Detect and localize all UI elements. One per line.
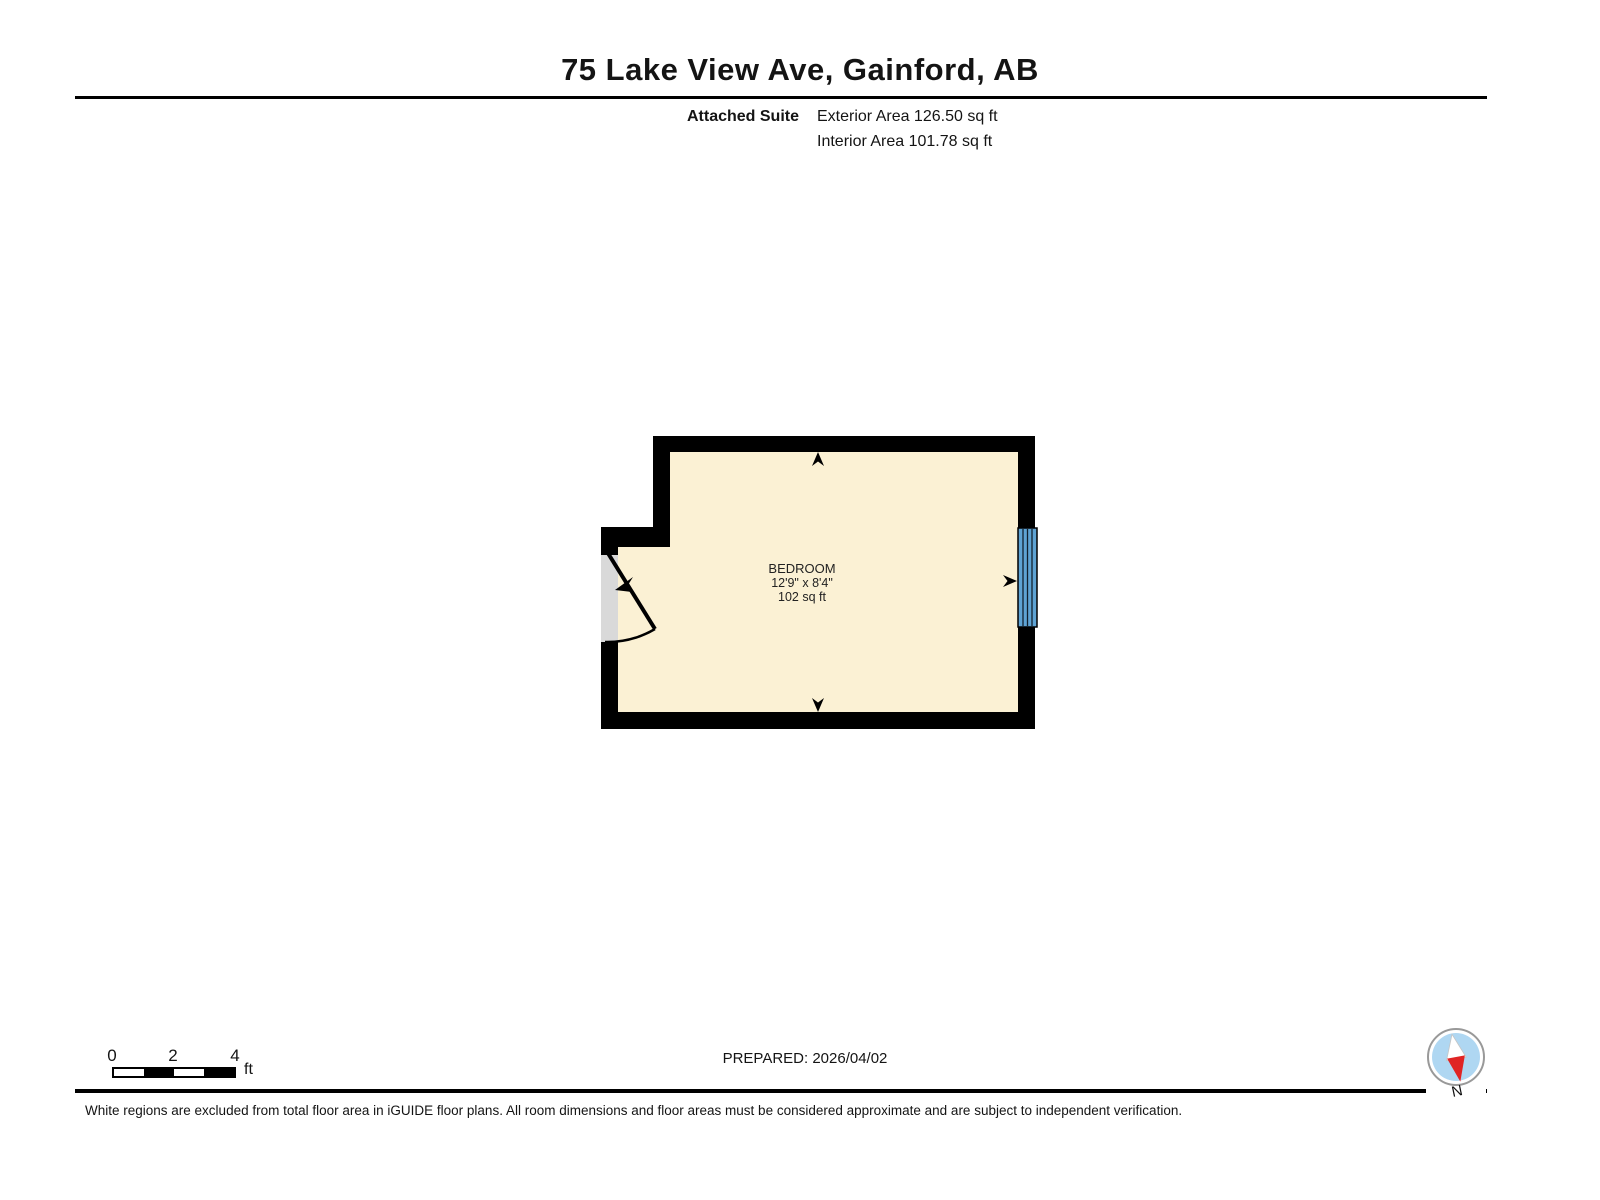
room-name: BEDROOM — [768, 561, 835, 576]
exterior-area: Exterior Area 126.50 sq ft — [817, 108, 998, 126]
scale-segment — [204, 1069, 234, 1076]
floorplan-page: 75 Lake View Ave, Gainford, AB Attached … — [0, 0, 1600, 1200]
prepared-date: PREPARED: 2026/04/02 — [723, 1050, 888, 1067]
suite-label: Attached Suite — [687, 108, 799, 126]
scale-segment — [114, 1069, 144, 1076]
scale-unit-label: ft — [244, 1061, 253, 1079]
interior-area: Interior Area 101.78 sq ft — [817, 133, 992, 151]
scale-segment — [174, 1069, 204, 1076]
scale-bar — [112, 1067, 236, 1078]
scale-segment — [144, 1069, 174, 1076]
scale-tick-4: 4 — [230, 1046, 239, 1066]
floorplan-drawing: BEDROOM 12'9" x 8'4" 102 sq ft — [560, 400, 1080, 745]
scale-tick-2: 2 — [168, 1046, 177, 1066]
title-rule — [75, 96, 1487, 99]
disclaimer-text: White regions are excluded from total fl… — [85, 1103, 1182, 1118]
page-title: 75 Lake View Ave, Gainford, AB — [0, 52, 1600, 88]
room-dimensions: 12'9" x 8'4" — [771, 576, 833, 590]
footer-rule — [75, 1089, 1487, 1093]
compass-icon: N — [1426, 1027, 1486, 1099]
scale-tick-0: 0 — [107, 1046, 116, 1066]
room-area: 102 sq ft — [778, 590, 826, 604]
